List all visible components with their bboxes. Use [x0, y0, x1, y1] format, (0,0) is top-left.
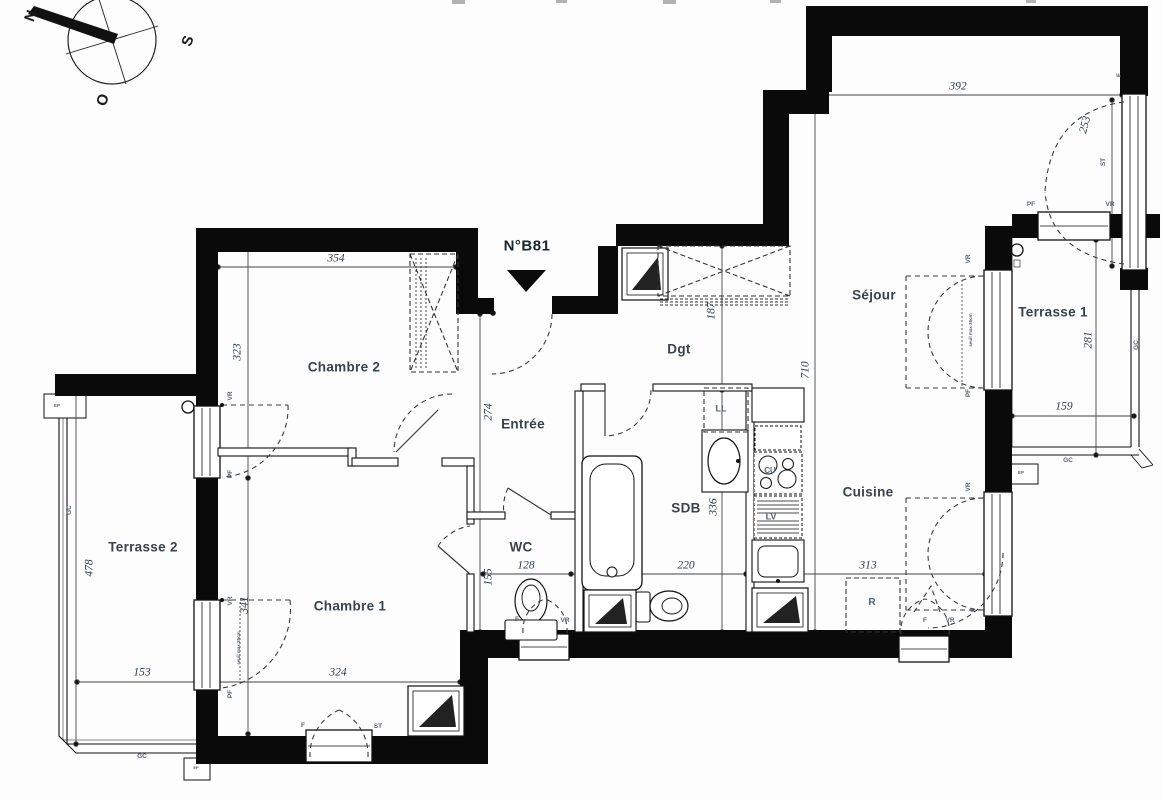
room-label-wc: WC — [509, 540, 532, 554]
dim-354: 354 — [327, 253, 344, 265]
room-label-dgt: Dgt — [667, 342, 690, 356]
tag-vr-10: VR — [945, 618, 954, 625]
dim-253: 253 — [1078, 115, 1094, 135]
tag-ep-24: EP — [54, 404, 60, 409]
tag-vr-17: VR — [1105, 202, 1114, 209]
tag-vr-0: VR — [228, 391, 235, 400]
tag-seuil-max-35cm-4: seuil max 35cm — [237, 631, 242, 664]
dim-153: 153 — [133, 667, 150, 679]
room-label-terrasse-2: Terrasse 2 — [108, 540, 178, 554]
tag-vr-11: VR — [966, 254, 973, 263]
dim-324: 324 — [329, 667, 346, 679]
tag-vr-2: VR — [228, 596, 235, 605]
dim-323: 323 — [232, 343, 244, 360]
room-label-sejour: Séjour — [852, 288, 896, 302]
plan-text-layer: Chambre 2Chambre 1EntréeWCSDBDgtSéjourCu… — [0, 0, 1162, 800]
dim-159: 159 — [1055, 401, 1072, 413]
tag-pf-12: PF — [966, 389, 973, 397]
tag-gc-23: GC — [1063, 458, 1073, 465]
tag-ep-26: EP — [193, 766, 198, 770]
dim-341: 341 — [239, 596, 251, 613]
dim-336: 336 — [708, 498, 720, 515]
tag-f-9: F — [923, 618, 927, 625]
tag-cu-28: CU — [764, 467, 776, 475]
tag-f-7: F — [301, 723, 305, 730]
tag-ll-27: LL — [716, 405, 727, 414]
tag-pf-16: PF — [1027, 202, 1035, 209]
tag-r-30: R — [868, 598, 875, 608]
tag-pf-3: PF — [228, 690, 235, 698]
tag-gc-21: GC — [137, 754, 147, 761]
dim-220: 220 — [677, 560, 694, 572]
room-label-entree: Entrée — [501, 417, 545, 431]
dim-128: 128 — [517, 560, 534, 572]
tag-gc-22: GC — [1134, 340, 1141, 350]
tag-ep-25: EP — [1018, 471, 1024, 476]
dim-274: 274 — [483, 403, 495, 420]
dim-281: 281 — [1083, 331, 1095, 348]
tag-f-5: F — [515, 617, 519, 624]
dim-155: 155 — [483, 568, 495, 585]
tag-f-18: F — [1117, 73, 1124, 77]
room-label-sdb: SDB — [671, 501, 700, 515]
dim-313: 313 — [859, 560, 876, 572]
compass-letter-o: O — [94, 92, 112, 108]
dim-710: 710 — [800, 361, 812, 378]
tag-seuil-max-35cm-13: seuil max 35cm — [969, 313, 974, 346]
tag-pf-1: PF — [228, 470, 235, 478]
dim-392: 392 — [949, 81, 966, 93]
room-label-chambre-2: Chambre 2 — [308, 360, 380, 374]
tag-gc-20: GC — [67, 505, 74, 515]
compass-letter-n: N — [22, 8, 40, 23]
floor-plan: N°B81 Chambre 2Chambre 1EntréeWCSDBDgtSé… — [0, 0, 1162, 800]
dim-187: 187 — [706, 302, 718, 319]
dim-478: 478 — [84, 559, 96, 576]
tag-vr-6: VR — [560, 618, 569, 625]
compass-letter-s: S — [179, 34, 197, 49]
tag-lv-29: LV — [766, 513, 777, 522]
tag-st-19: ST — [1101, 158, 1108, 166]
tag-vr-14: VR — [966, 482, 973, 491]
tag-f-15: F — [971, 608, 978, 612]
room-label-chambre-1: Chambre 1 — [314, 599, 386, 613]
room-label-terrasse-1: Terrasse 1 — [1018, 305, 1088, 319]
room-label-cuisine: Cuisine — [843, 485, 894, 499]
tag-st-8: ST — [374, 724, 382, 731]
